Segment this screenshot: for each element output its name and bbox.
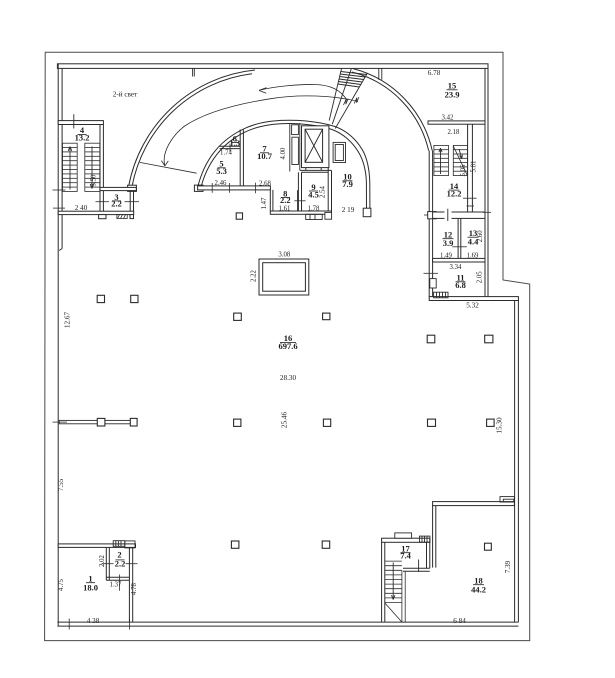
svg-text:2.02: 2.02 [99,554,106,566]
svg-text:7.4: 7.4 [400,550,411,560]
svg-text:7.9: 7.9 [342,179,353,189]
svg-text:13.2: 13.2 [75,133,90,143]
svg-text:4.5: 4.5 [308,190,319,200]
svg-text:2.05: 2.05 [477,271,484,283]
svg-text:18.0: 18.0 [83,583,98,593]
svg-text:3.9: 3.9 [443,238,454,248]
svg-text:4.00: 4.00 [280,147,287,159]
svg-text:2.68: 2.68 [259,180,271,187]
svg-text:1.37: 1.37 [110,582,122,589]
svg-text:2 19: 2 19 [342,206,355,214]
svg-text:3.08: 3.08 [278,251,290,258]
svg-text:2.54: 2.54 [320,185,327,197]
svg-text:1.47: 1.47 [261,197,268,209]
svg-text:12.67: 12.67 [64,312,72,329]
svg-text:6.78: 6.78 [428,69,441,77]
svg-text:4 38: 4 38 [87,617,100,625]
svg-text:3.50: 3.50 [91,174,98,186]
svg-text:1.61: 1.61 [279,205,291,212]
svg-text:5.3: 5.3 [216,166,227,176]
svg-text:44.2: 44.2 [471,584,486,594]
svg-text:6 84: 6 84 [453,617,466,625]
svg-text:10.7: 10.7 [257,151,273,161]
svg-text:12.2: 12.2 [447,188,462,198]
svg-text:5.05: 5.05 [460,164,467,176]
svg-text:23.9: 23.9 [445,89,460,99]
svg-text:2.18: 2.18 [448,129,460,136]
svg-text:3.34: 3.34 [450,264,462,271]
svg-text:1.49: 1.49 [440,252,452,259]
svg-text:1.3: 1.3 [229,138,240,148]
svg-text:2.60: 2.60 [477,230,484,242]
svg-text:25.46: 25.46 [281,412,289,429]
svg-text:4.75: 4.75 [58,578,65,590]
svg-text:2-й свет: 2-й свет [113,91,138,99]
svg-text:2.22: 2.22 [251,269,258,281]
svg-text:6.8: 6.8 [455,280,466,290]
svg-text:1.74: 1.74 [220,149,232,156]
svg-text:7.55: 7.55 [57,478,65,491]
svg-text:2.46: 2.46 [215,180,227,187]
svg-text:2.2: 2.2 [115,558,126,568]
svg-text:3.42: 3.42 [442,115,454,122]
svg-text:2 40: 2 40 [75,204,88,212]
svg-text:5.81: 5.81 [471,161,478,173]
svg-text:28.30: 28.30 [280,374,297,382]
svg-text:2.2: 2.2 [280,195,291,205]
svg-text:4.78: 4.78 [131,582,138,594]
svg-text:7.39: 7.39 [504,560,512,573]
svg-text:5.32: 5.32 [466,302,479,310]
svg-text:15.30: 15.30 [496,417,504,434]
svg-text:2.2: 2.2 [111,199,122,209]
svg-text:1.69: 1.69 [467,252,479,259]
svg-text:697.6: 697.6 [278,341,297,351]
